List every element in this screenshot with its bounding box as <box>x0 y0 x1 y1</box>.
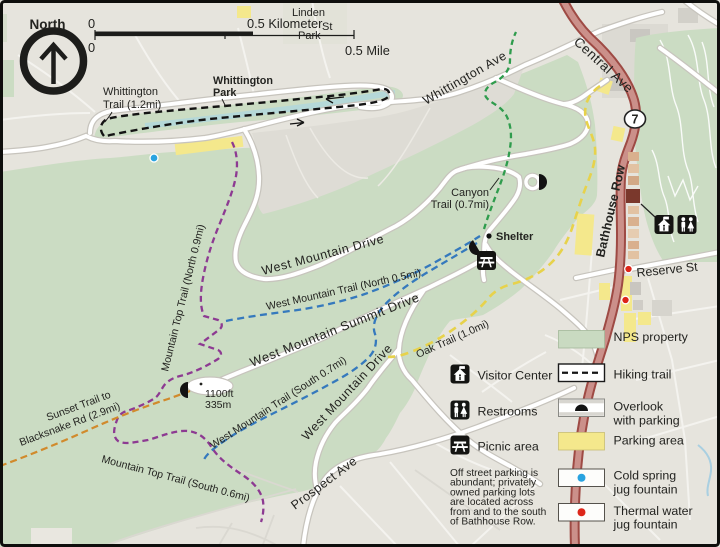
svg-text:Shelter: Shelter <box>496 231 534 243</box>
svg-text:with parking: with parking <box>613 414 680 428</box>
svg-text:NPS property: NPS property <box>614 330 689 344</box>
svg-text:jug fountain: jug fountain <box>613 483 678 497</box>
svg-text:335m: 335m <box>205 399 232 411</box>
svg-text:Restrooms: Restrooms <box>478 405 538 419</box>
svg-text:0: 0 <box>88 16 95 31</box>
svg-text:Whittington: Whittington <box>103 86 158 98</box>
svg-text:Thermal water: Thermal water <box>614 504 693 518</box>
svg-text:0: 0 <box>88 40 95 55</box>
svg-text:Parking area: Parking area <box>614 434 684 448</box>
svg-text:Picnic area: Picnic area <box>478 440 539 454</box>
svg-text:Whittington: Whittington <box>213 75 273 87</box>
svg-text:jug fountain: jug fountain <box>613 518 678 532</box>
svg-text:7: 7 <box>632 113 639 127</box>
svg-text:North: North <box>30 17 66 32</box>
svg-text:Trail (0.7mi): Trail (0.7mi) <box>431 199 489 211</box>
svg-text:Trail (1.2mi): Trail (1.2mi) <box>103 99 161 111</box>
svg-text:0.5 Mile: 0.5 Mile <box>345 43 390 58</box>
svg-text:Visitor Center: Visitor Center <box>478 369 553 383</box>
svg-text:Overlook: Overlook <box>614 400 664 414</box>
svg-text:Hiking trail: Hiking trail <box>614 368 672 382</box>
svg-text:Cold spring: Cold spring <box>614 469 677 483</box>
svg-text:Park: Park <box>213 87 237 99</box>
svg-text:0.5 Kilometer: 0.5 Kilometer <box>247 16 323 31</box>
svg-text:of Bathhouse Row.: of Bathhouse Row. <box>450 517 536 528</box>
svg-text:St: St <box>322 21 332 33</box>
svg-text:Canyon: Canyon <box>451 187 489 199</box>
